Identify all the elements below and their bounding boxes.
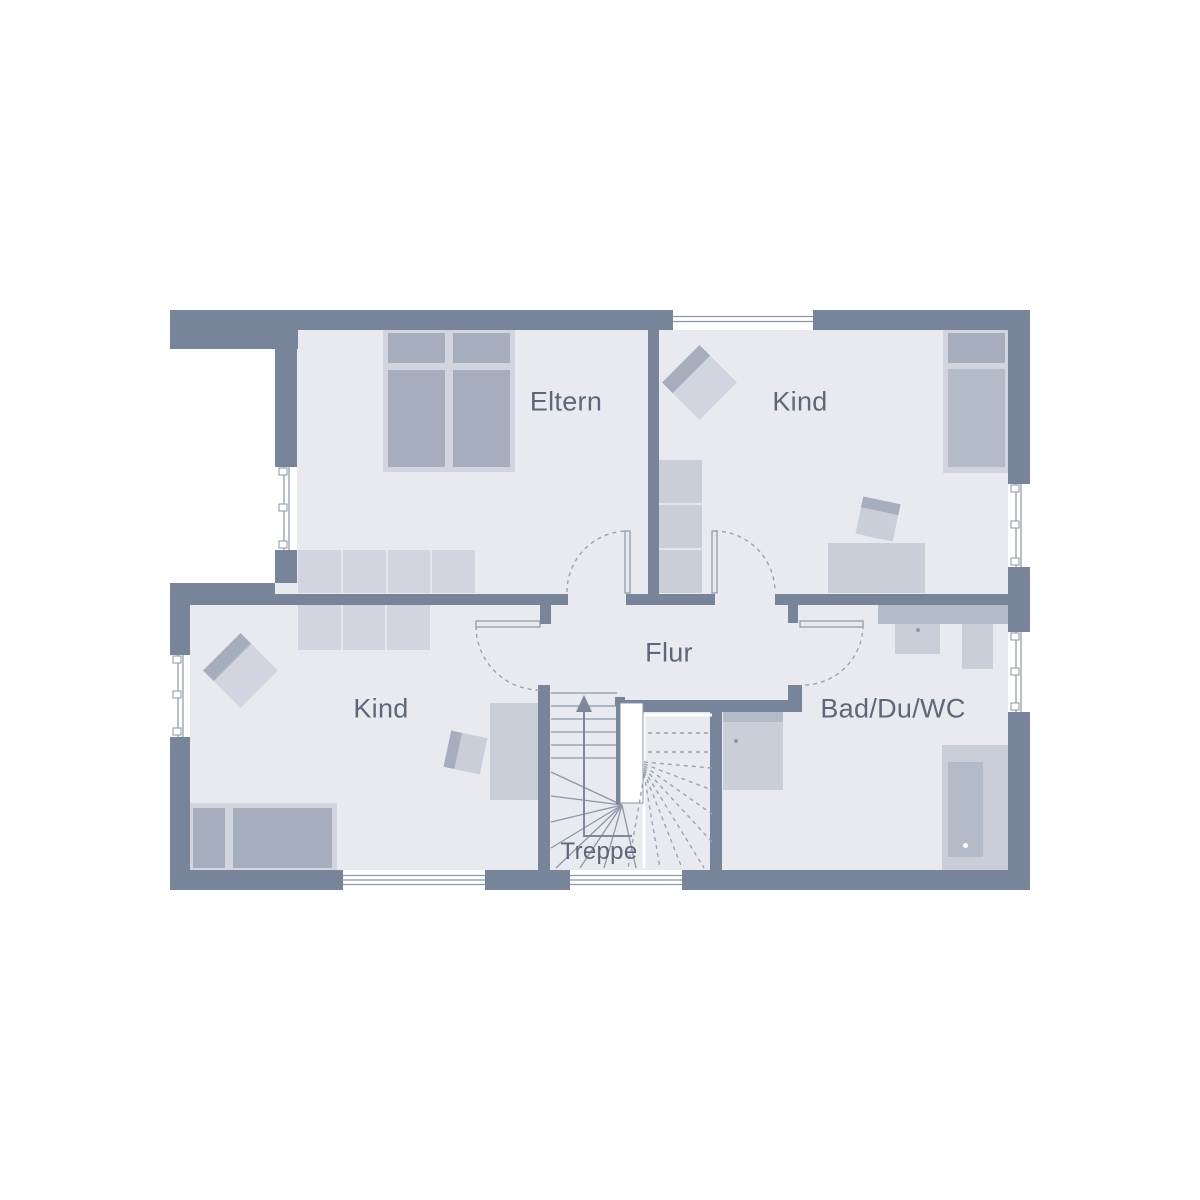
window-top-kind [673, 310, 813, 330]
eltern-door-leaf [625, 531, 630, 593]
window-eltern-west [275, 467, 297, 550]
room-label-kind-lower: Kind [353, 694, 408, 725]
room-label-treppe: Treppe [561, 838, 638, 866]
bath-door-leaf [800, 621, 863, 627]
floor-plan: Eltern Kind Kind Flur Bad/Du/WC Treppe [0, 0, 1200, 1200]
room-label-eltern: Eltern [530, 387, 602, 418]
plan-linework [0, 0, 1200, 1200]
bath-door-swing [803, 625, 863, 685]
window-bath-east [1008, 632, 1030, 712]
room-label-bad: Bad/Du/WC [820, 694, 965, 725]
kind-lower-door-swing [476, 626, 540, 690]
kind-upper-door-leaf [712, 531, 717, 593]
window-kind-lower-south [343, 870, 485, 890]
room-label-flur: Flur [645, 638, 693, 669]
window-kind-upper-east [1008, 484, 1030, 567]
kind-lower-door-leaf [476, 621, 540, 627]
stair-void [620, 703, 643, 803]
eltern-door-swing [567, 531, 628, 592]
room-label-kind-upper: Kind [772, 387, 827, 418]
window-kind-lower-west [170, 655, 190, 737]
window-treppe-south [570, 870, 682, 890]
kind-upper-door-swing [714, 531, 775, 592]
